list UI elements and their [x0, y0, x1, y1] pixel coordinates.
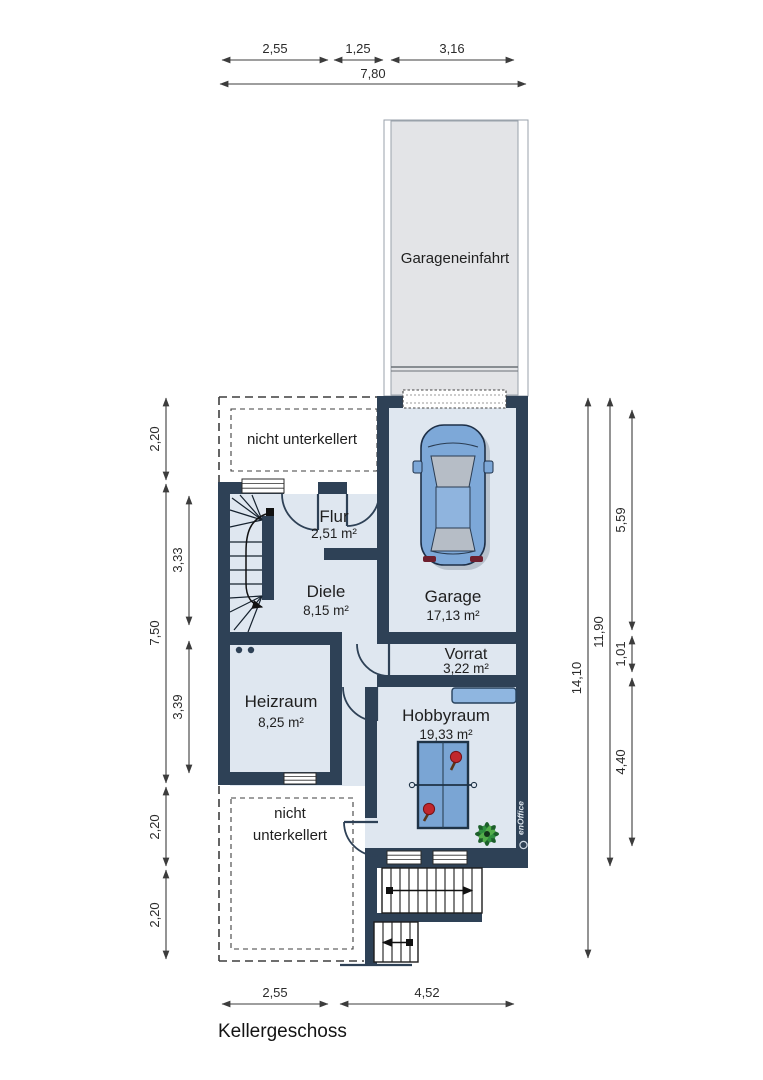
floorplan-page: Garageneinfahrt nicht unterkellert nicht…	[0, 0, 763, 1080]
stair-pit-wall	[377, 913, 482, 922]
dim-left-2: 7,50	[147, 620, 162, 645]
room-area-garage: 17,13 m²	[426, 608, 480, 623]
dim-left-inner-2: 3,39	[170, 694, 185, 719]
hobbyraum-window-icon-1	[387, 851, 421, 864]
heizraum-bottom-wall	[218, 772, 342, 785]
logo-text: enOffice	[516, 801, 526, 835]
heizraum-window-icon	[284, 773, 316, 784]
garage-door-icon	[403, 390, 506, 408]
dim-right-total: 14,10	[569, 662, 584, 695]
dim-right-inner-1: 5,59	[613, 507, 628, 532]
room-area-diele: 8,15 m²	[303, 603, 349, 618]
dim-top-1: 2,55	[262, 41, 287, 56]
plant-icon	[475, 822, 499, 846]
hobbyraum-window-icon-2	[433, 851, 467, 864]
driveway-label: Garageneinfahrt	[401, 250, 510, 267]
stair-arrow-start	[266, 508, 274, 516]
dim-top-total: 7,80	[360, 66, 385, 81]
hobbyraum-left-wall	[365, 687, 377, 818]
floorplan-drawing: Garageneinfahrt nicht unterkellert nicht…	[0, 0, 763, 1080]
dim-top-3: 3,16	[439, 41, 464, 56]
room-area-heizraum: 8,25 m²	[258, 715, 304, 730]
room-label-flur: Flur	[319, 507, 349, 526]
room-area-vorrat: 3,22 m²	[443, 661, 489, 676]
dim-left-3: 2,20	[147, 814, 162, 839]
car-icon	[413, 425, 493, 570]
garage-left-wall	[377, 396, 389, 644]
room-area-hobbyraum: 19,33 m²	[419, 727, 473, 742]
dim-left-1: 2,20	[147, 426, 162, 451]
stair-window-icon	[242, 479, 284, 493]
dim-bottom-2: 4,52	[414, 985, 439, 1000]
plan-title: Kellergeschoss	[218, 1021, 347, 1042]
heizraum-right-wall	[330, 632, 342, 785]
table-tennis-icon	[409, 742, 476, 828]
room-label-diele: Diele	[307, 582, 346, 601]
garage-door	[403, 390, 506, 408]
room-label-hobbyraum: Hobbyraum	[402, 706, 490, 725]
exterior-stairs-upper-icon	[382, 868, 482, 913]
dim-top-2: 1,25	[345, 41, 370, 56]
garage-vorrat-wall	[377, 632, 528, 644]
driveway: Garageneinfahrt	[384, 120, 528, 396]
lower-no-basement-label-1: nicht	[274, 805, 307, 822]
upper-no-basement-label: nicht unterkellert	[247, 431, 358, 448]
room-label-heizraum: Heizraum	[245, 692, 318, 711]
room-label-garage: Garage	[425, 587, 482, 606]
dim-left-4: 2,20	[147, 902, 162, 927]
dim-left-inner-1: 3,33	[170, 547, 185, 572]
shelf-icon	[452, 688, 516, 703]
dim-right-building: 11,90	[591, 616, 606, 648]
dim-bottom-1: 2,55	[262, 985, 287, 1000]
vorrat-bottom-wall	[377, 675, 528, 687]
flur-bottom-wall	[324, 548, 389, 560]
dim-right-inner-3: 4,40	[613, 749, 628, 774]
stair-spine-wall	[262, 516, 274, 600]
dim-right-inner-2: 1,01	[613, 641, 628, 666]
lower-no-basement-label-2: unterkellert	[253, 827, 328, 844]
room-area-flur: 2,51 m²	[311, 526, 357, 541]
exterior-stairs-lower-icon	[374, 922, 418, 962]
